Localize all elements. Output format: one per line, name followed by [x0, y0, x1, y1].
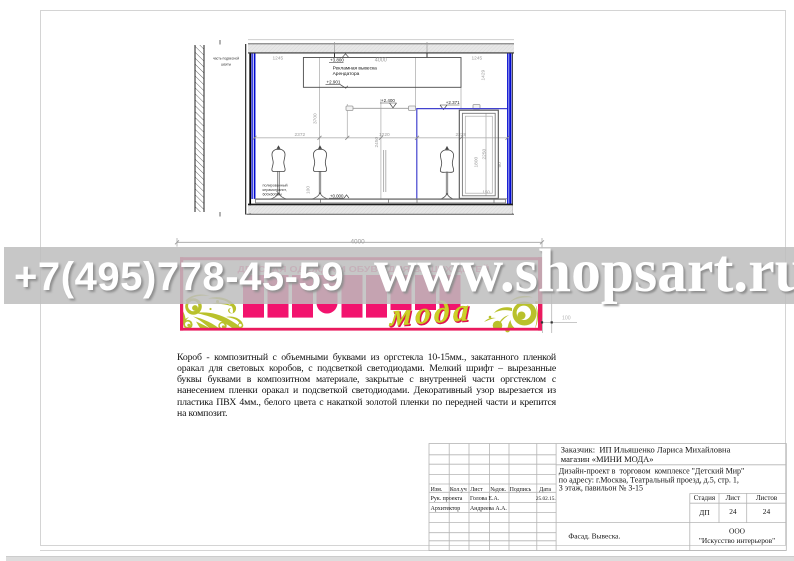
- svg-text:Кол.уч: Кол.уч: [450, 487, 467, 493]
- svg-text:магазин «МИНИ МОДА»: магазин «МИНИ МОДА»: [561, 454, 654, 464]
- svg-text:Лист: Лист: [470, 487, 483, 493]
- svg-text:"Искусство интерьеров": "Искусство интерьеров": [699, 536, 775, 545]
- svg-text:Голова Е.А.: Голова Е.А.: [470, 496, 500, 502]
- svg-text:24: 24: [763, 507, 771, 516]
- svg-text:ДП: ДП: [699, 508, 710, 517]
- svg-text:№док.: №док.: [490, 487, 506, 493]
- svg-text:3 этаж, павильон № 3-15: 3 этаж, павильон № 3-15: [559, 484, 643, 493]
- svg-text:Листов: Листов: [756, 494, 778, 502]
- svg-text:Фасад. Вывеска.: Фасад. Вывеска.: [568, 532, 620, 541]
- svg-text:Архитектор: Архитектор: [431, 506, 461, 512]
- svg-text:Лист: Лист: [726, 494, 741, 502]
- svg-text:Изм.: Изм.: [431, 487, 443, 493]
- svg-text:25.02.15.: 25.02.15.: [536, 496, 556, 502]
- svg-text:Дата: Дата: [539, 487, 551, 493]
- svg-text:Андреева А.А.: Андреева А.А.: [470, 506, 507, 512]
- svg-text:Дизайн-проект в торговом ком: Дизайн-проект в торговом комплексе "Детс…: [559, 466, 745, 475]
- svg-text:Рук. проекта: Рук. проекта: [431, 496, 463, 502]
- svg-text:Стадия: Стадия: [694, 494, 716, 502]
- svg-text:ООО: ООО: [729, 527, 746, 536]
- svg-text:24: 24: [729, 507, 737, 516]
- svg-text:Подпись: Подпись: [510, 487, 532, 493]
- svg-text:Заказчик: ИП Ильяшенко Лариса: Заказчик: ИП Ильяшенко Лариса Михайловна: [561, 445, 731, 455]
